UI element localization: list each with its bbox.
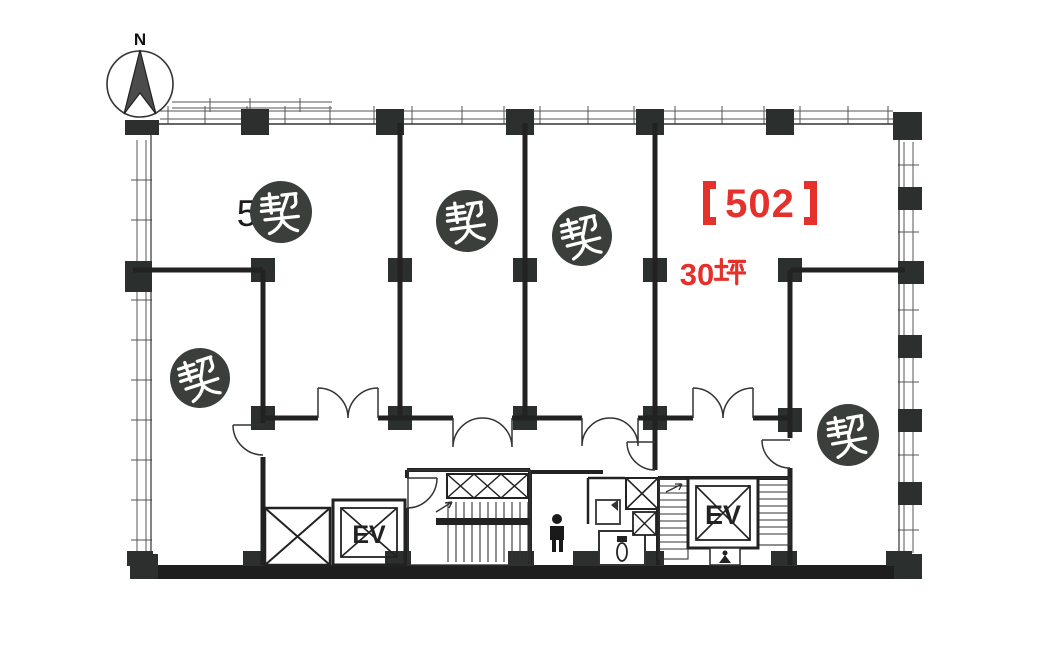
lenticular-bracket-right <box>804 181 817 225</box>
door-stair-lobby <box>407 478 437 508</box>
service-box <box>710 548 740 565</box>
area-number: 30 <box>680 257 714 292</box>
shaft-box-2 <box>626 478 658 509</box>
double-door-room-1 <box>318 388 378 418</box>
bottom-wall <box>133 565 922 579</box>
lenticular-bracket-left <box>703 181 716 225</box>
unit-502-label: 【502】 502 <box>703 181 817 226</box>
stair-direction-arrow-1 <box>436 502 452 512</box>
north-compass: N <box>107 30 173 117</box>
man-icon <box>550 514 564 552</box>
elevator-2: EV <box>688 478 758 548</box>
door-toilet-lobby <box>627 442 655 470</box>
unit-area-label: 30坪 30 <box>680 257 746 292</box>
stair-direction-arrow-2 <box>666 484 682 492</box>
stair-treads-2-left <box>659 486 688 549</box>
unit-number: 502 <box>725 182 795 226</box>
building-core: EV <box>265 470 790 565</box>
stairwell-1 <box>408 470 530 565</box>
contract-seal-4: 契 <box>162 340 238 416</box>
tsubo-kanji-icon <box>715 259 745 283</box>
elevator-1-label: EV <box>352 521 386 549</box>
stair-treads-2-right <box>758 485 790 534</box>
contract-seal-5: 契 <box>812 399 884 471</box>
contract-seal-1: 契 <box>247 178 315 246</box>
sink-icon <box>596 500 620 524</box>
shaft-box-left <box>265 508 330 565</box>
stair-landing-bar <box>436 518 530 525</box>
toilet-stall <box>599 531 645 565</box>
north-label: N <box>134 30 146 49</box>
elevator-2-label: EV <box>705 500 741 530</box>
contract-seal-2: 契 <box>432 186 502 256</box>
toilet-area <box>550 478 658 565</box>
double-door-unit-502 <box>693 388 753 418</box>
door-bottom-right-room <box>762 440 790 468</box>
left-window-band <box>131 124 152 565</box>
floor-plan: N <box>0 0 1056 653</box>
contract-seal-3: 契 <box>546 200 619 273</box>
shaft-box-3 <box>633 512 656 535</box>
north-arrow-icon <box>124 50 156 114</box>
elevator-1: EV <box>333 500 405 565</box>
double-door-room-2 <box>453 418 512 447</box>
stair-balustrade-hatch <box>447 474 528 498</box>
floor-plan-canvas: N <box>0 0 1056 653</box>
